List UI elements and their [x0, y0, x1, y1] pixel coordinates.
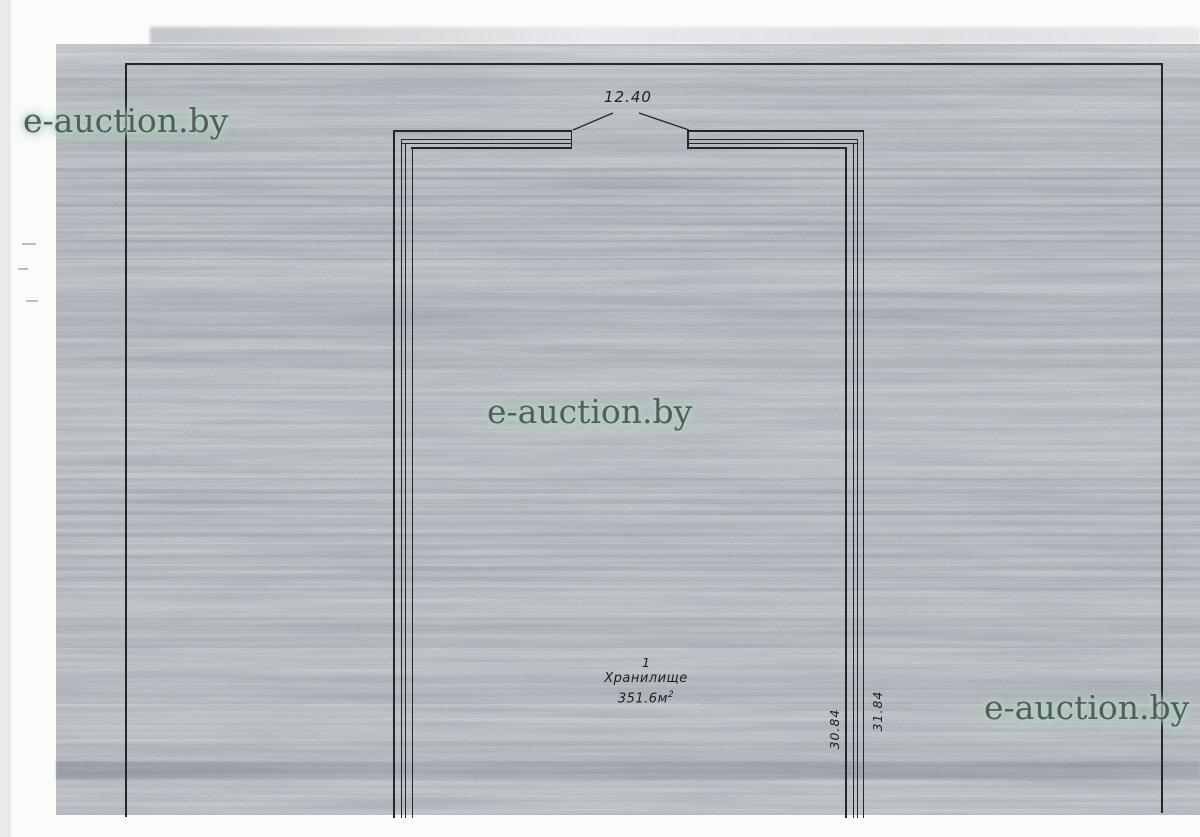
room-top-wall-left-outer	[393, 130, 572, 132]
margin-artifact	[22, 243, 36, 245]
frame-left-line	[125, 63, 127, 817]
room-top-wall-left-line	[402, 139, 572, 140]
opening-left-jamb-line	[571, 130, 573, 149]
room-left-wall-line	[401, 139, 402, 818]
top-smudge-band	[150, 27, 1200, 44]
room-top-wall-right-line	[687, 143, 857, 144]
scanned-floor-plan: 12.40 30.84 31.84 1 Хранилище 351.6м2 e-…	[0, 0, 1200, 837]
room-number: 1	[592, 655, 700, 670]
dimension-label-wall-outer: 31.84	[870, 682, 886, 740]
room-area-superscript: 2	[668, 690, 674, 700]
dimension-label-wall-inner: 30.84	[827, 700, 843, 758]
room-left-wall-outer-line	[393, 130, 395, 818]
watermark-center: e-auction.by	[487, 392, 692, 431]
margin-artifact	[18, 268, 28, 270]
watermark-bottom-right: e-auction.by	[984, 688, 1189, 727]
watermark-top-left: e-auction.by	[23, 101, 228, 140]
room-top-wall-left-line	[402, 143, 572, 144]
room-label: 1 Хранилище 351.6м2	[592, 655, 700, 707]
room-right-wall-outer-line	[863, 130, 865, 818]
frame-top-line	[125, 63, 1163, 65]
scanner-edge-strip	[0, 0, 11, 837]
room-right-wall-line	[857, 139, 858, 818]
room-top-wall-right-inner	[687, 147, 847, 149]
margin-artifact	[26, 300, 38, 302]
room-area: 351.6м2	[592, 687, 700, 707]
room-top-wall-right-outer	[687, 130, 864, 132]
room-top-wall-right-line	[687, 139, 857, 140]
dimension-label-opening-width: 12.40	[596, 88, 660, 106]
room-right-wall-inner-line	[845, 147, 847, 818]
room-top-wall-left-inner	[411, 147, 572, 149]
room-name: Хранилище	[592, 670, 700, 687]
room-left-wall-line	[405, 143, 406, 818]
room-right-wall-line	[853, 143, 854, 818]
opening-right-jamb-line	[687, 130, 689, 149]
room-area-value: 351.6м	[618, 691, 668, 706]
room-left-wall-inner-line	[412, 147, 414, 818]
